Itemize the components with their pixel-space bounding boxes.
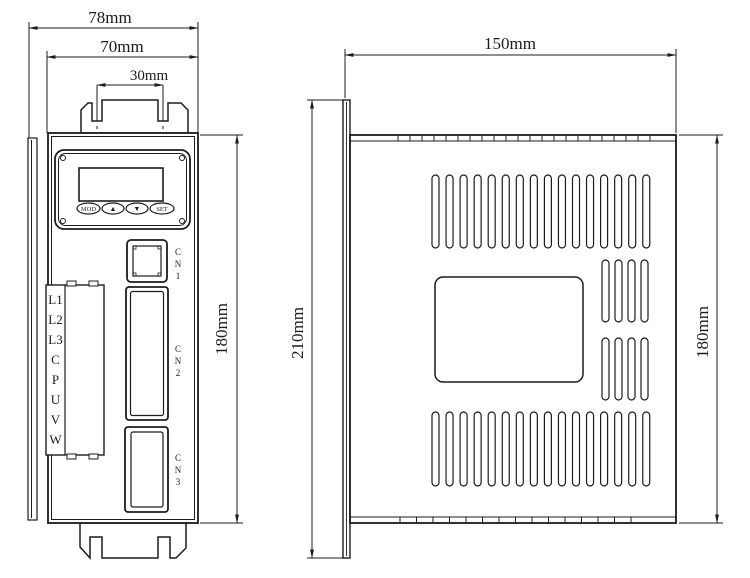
cn1-label: 1: [176, 271, 181, 281]
dimension-180mm-front: 180mm: [200, 135, 243, 523]
terminal-label: C: [51, 352, 60, 367]
dimension-150mm: 150mm: [345, 34, 676, 133]
cn3-label: 3: [176, 477, 181, 487]
top-mounting-bracket: [81, 85, 188, 133]
cn1-label: N: [175, 259, 182, 269]
terminal-label: L1: [48, 292, 62, 307]
dimension-210mm: 210mm: [288, 100, 343, 558]
dim-label-30mm: 30mm: [130, 68, 169, 84]
set-button-label: SET: [156, 206, 168, 213]
dim-label-70mm: 70mm: [100, 37, 143, 56]
side-body: [350, 135, 676, 523]
dim-label-150mm: 150mm: [484, 34, 536, 53]
dim-label-180mm-side: 180mm: [693, 306, 712, 358]
cn2-label: C: [175, 344, 181, 354]
terminal-label: U: [51, 392, 61, 407]
dim-label-78mm: 78mm: [88, 8, 131, 27]
cn2-label: 2: [176, 368, 181, 378]
mode-button-label: MOD: [81, 206, 96, 213]
dim-label-180mm-front: 180mm: [212, 303, 231, 355]
terminal-label: P: [52, 372, 59, 387]
dim-label-210mm: 210mm: [288, 307, 307, 359]
left-side-strip: [28, 138, 37, 520]
terminal-block: L1 L2 L3 C P U V W: [46, 281, 104, 459]
technical-drawing: 78mm 70mm 30mm: [0, 0, 750, 578]
servo-drive-dimension-diagram: 78mm 70mm 30mm: [0, 0, 750, 578]
dimension-30mm: 30mm: [97, 68, 168, 85]
display-panel: MOD ▲ ▼ SET: [55, 150, 190, 229]
dimension-180mm-side: 180mm: [679, 135, 723, 523]
terminal-label: V: [51, 412, 61, 427]
cn1-label: C: [175, 247, 181, 257]
terminal-label: W: [49, 432, 62, 447]
down-arrow-icon: ▼: [134, 205, 141, 213]
bottom-mounting-bracket: [80, 523, 186, 558]
cn2-label: N: [175, 356, 182, 366]
mounting-flange: [343, 100, 350, 558]
cn3-label: C: [175, 453, 181, 463]
cn3-label: N: [175, 465, 182, 475]
terminal-label: L3: [48, 332, 62, 347]
side-view: 150mm 210mm: [288, 34, 723, 558]
terminal-label: L2: [48, 312, 62, 327]
front-view: 78mm 70mm 30mm: [28, 8, 243, 558]
up-arrow-icon: ▲: [110, 205, 117, 213]
